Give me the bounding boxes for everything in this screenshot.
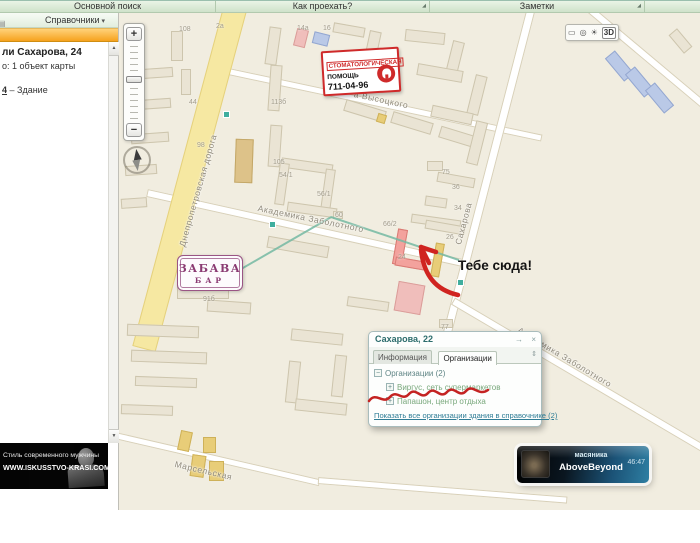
search-accent-bar: [0, 28, 118, 42]
directories-label: Справочники: [45, 15, 100, 25]
map-building: [331, 354, 347, 397]
zoom-tick: [130, 112, 138, 113]
sidebar-scrollbar[interactable]: ▲ ▼: [108, 42, 118, 443]
building-number: 113б: [271, 99, 286, 106]
expand-icon[interactable]: +: [386, 383, 394, 391]
map-building: [274, 163, 290, 206]
dental-clinic-ad[interactable]: СТОМАТОЛОГИЧЕСКАЯ ПОМОЩЬ 711-04-96: [321, 47, 402, 97]
sidebar-panel: ▤ Справочники▾ ли Сахарова, 24 о: 1 объе…: [0, 13, 118, 443]
popup-title-text: Сахарова, 22: [375, 334, 433, 344]
3d-mode-button[interactable]: 3D: [602, 27, 616, 39]
map-building: [312, 31, 330, 47]
map-building: [466, 74, 487, 116]
organizations-group: −Организации (2): [374, 369, 536, 378]
app-window: Основной поиск Как проехать? ◢ Заметки ◢…: [0, 0, 700, 543]
map-building: [347, 296, 390, 312]
building-number: 91б: [203, 296, 215, 303]
top-tab-bar: Основной поиск Как проехать? ◢ Заметки ◢: [0, 0, 700, 13]
org-item-label[interactable]: Виргус, сеть супермаркетов: [397, 383, 500, 392]
building-number: 54/1: [279, 172, 293, 179]
map-building: [181, 69, 191, 95]
map-building: [127, 324, 199, 339]
route-to-icon[interactable]: →: [515, 332, 523, 347]
map-building: [291, 328, 344, 345]
map-building: [121, 197, 148, 209]
compass-icon[interactable]: [123, 146, 151, 174]
tab-directions[interactable]: Как проехать? ◢: [216, 1, 430, 12]
building-number: 24: [398, 254, 406, 261]
zoom-tick: [130, 94, 138, 95]
dialog-launcher-icon[interactable]: ◢: [637, 3, 641, 10]
search-result-count: о: 1 объект карты: [2, 61, 75, 71]
map-building: [171, 31, 183, 61]
compass-needle-north: [132, 148, 141, 160]
ad-tagline: Стиль современного мужчины: [3, 452, 99, 459]
transit-stop-marker: [223, 111, 230, 118]
zoom-tick: [130, 106, 138, 107]
zoom-tick: [130, 46, 138, 47]
tab-directions-label: Как проехать?: [293, 1, 352, 11]
zoom-slider-thumb[interactable]: [126, 76, 142, 83]
transit-stop-marker: [457, 279, 464, 286]
building-number: 36: [452, 184, 460, 191]
zoom-scale[interactable]: [124, 46, 144, 122]
result-link[interactable]: 4 – Здание: [2, 85, 48, 95]
map-building: [376, 113, 387, 124]
building-number: 34: [454, 205, 462, 212]
dial-icon[interactable]: ◎: [580, 26, 587, 39]
zoom-tick: [130, 52, 138, 53]
zoom-tick: [130, 70, 138, 71]
scroll-up-icon[interactable]: ▲: [109, 42, 119, 56]
zabava-title: ЗАБАВА: [178, 262, 242, 275]
map-building: [320, 169, 336, 212]
map-building: [394, 281, 426, 315]
zoom-control: + −: [123, 23, 145, 141]
building-number: 26: [446, 234, 454, 241]
org-item-label[interactable]: Папашон, центр отдыха: [397, 397, 486, 406]
search-result-title: ли Сахарова, 24: [2, 47, 82, 58]
globe-icon[interactable]: ☀: [591, 26, 598, 39]
show-all-organizations-link[interactable]: Показать все организации здания в справо…: [374, 411, 536, 420]
panel-icon: ▤: [0, 16, 6, 31]
building-number: 16: [323, 25, 331, 32]
zabava-bar-label[interactable]: ЗАБАВА БАР: [177, 255, 243, 291]
building-number: 98: [197, 142, 205, 149]
popup-tabs: Информация Организации ⇕: [369, 347, 541, 364]
map-building: [404, 29, 445, 45]
map-building: [135, 376, 197, 388]
collapse-icon[interactable]: −: [374, 369, 382, 377]
map-building: [285, 360, 301, 403]
compass-needle-south: [132, 159, 141, 171]
building-number: 66/2: [383, 221, 397, 228]
map-building: [427, 161, 443, 171]
tab-main-search[interactable]: Основной поиск: [0, 1, 216, 12]
map-toolbar: ▭ ◎ ☀ 3D: [565, 24, 619, 41]
building-number: 2а: [216, 23, 224, 30]
building-number: 77: [441, 324, 449, 331]
player-time: 46:47: [627, 459, 645, 466]
zoom-out-button[interactable]: −: [126, 123, 142, 137]
ad-url: WWW.ISKUSSTVO-KRASI.COM: [3, 463, 108, 472]
map-building: [669, 28, 693, 53]
popup-body: −Организации (2) +Виргус, сеть супермарк…: [369, 364, 541, 426]
map-building: [295, 398, 348, 415]
building-number: 56/1: [317, 191, 331, 198]
ad-banner[interactable]: Стиль современного мужчины WWW.ISKUSSTVO…: [0, 443, 108, 489]
tab-information[interactable]: Информация: [373, 350, 432, 364]
sort-icon[interactable]: ⇕: [531, 350, 537, 358]
zabava-subtitle: БАР: [178, 276, 242, 285]
scroll-down-icon[interactable]: ▼: [109, 429, 119, 443]
chevron-down-icon: ▾: [101, 18, 105, 25]
organizations-group-label: Организации (2): [385, 369, 445, 378]
map-building: [203, 437, 216, 453]
search-results-panel: ли Сахарова, 24 о: 1 объект карты 4 – Зд…: [0, 42, 118, 443]
tab-notes[interactable]: Заметки ◢: [430, 1, 645, 12]
expand-icon[interactable]: +: [386, 397, 394, 405]
map-building: [645, 82, 674, 113]
annotation-text: Тебе сюда!: [458, 258, 532, 273]
map-building: [424, 196, 447, 209]
zoom-tick: [130, 64, 138, 65]
building-number: 105: [273, 159, 285, 166]
map-building: [332, 22, 365, 37]
tab-organizations[interactable]: Организации: [438, 351, 496, 365]
map-building: [264, 26, 281, 65]
map-building: [121, 404, 173, 416]
popup-title: Сахарова, 22 → ×: [369, 332, 541, 347]
map-building: [131, 350, 207, 365]
close-icon[interactable]: ×: [531, 332, 536, 347]
building-popup: Сахарова, 22 → × Информация Организации …: [368, 331, 542, 427]
zoom-tick: [130, 88, 138, 89]
org-item-virgus[interactable]: +Виргус, сеть супермаркетов: [386, 383, 536, 392]
player-track: масяника: [555, 452, 627, 459]
tab-notes-label: Заметки: [520, 1, 554, 11]
player-artist: AboveBeyond: [555, 462, 627, 473]
building-number: 108: [179, 26, 191, 33]
building-number: 75: [442, 169, 450, 176]
tab-main-search-label: Основной поиск: [74, 1, 141, 11]
building-number: 44: [189, 99, 197, 106]
building-number: 60: [335, 212, 343, 219]
map-building: [234, 139, 254, 184]
zoom-tick: [130, 58, 138, 59]
zoom-in-button[interactable]: +: [126, 27, 142, 41]
transit-stop-marker: [269, 221, 276, 228]
directories-header[interactable]: ▤ Справочники▾: [0, 13, 118, 28]
zoom-tick: [130, 100, 138, 101]
ruler-icon[interactable]: ▭: [568, 26, 576, 39]
album-art: [521, 450, 550, 478]
building-number: 14а: [297, 25, 309, 32]
result-link-text: – Здание: [7, 85, 48, 95]
tab-bar-filler: [645, 1, 700, 12]
org-item-papashon[interactable]: +Папашон, центр отдыха: [386, 397, 536, 406]
dialog-launcher-icon[interactable]: ◢: [422, 3, 426, 10]
map-building: [141, 67, 174, 79]
zoom-tick: [130, 118, 138, 119]
music-player-widget[interactable]: масяника AboveBeyond 46:47: [517, 446, 649, 483]
